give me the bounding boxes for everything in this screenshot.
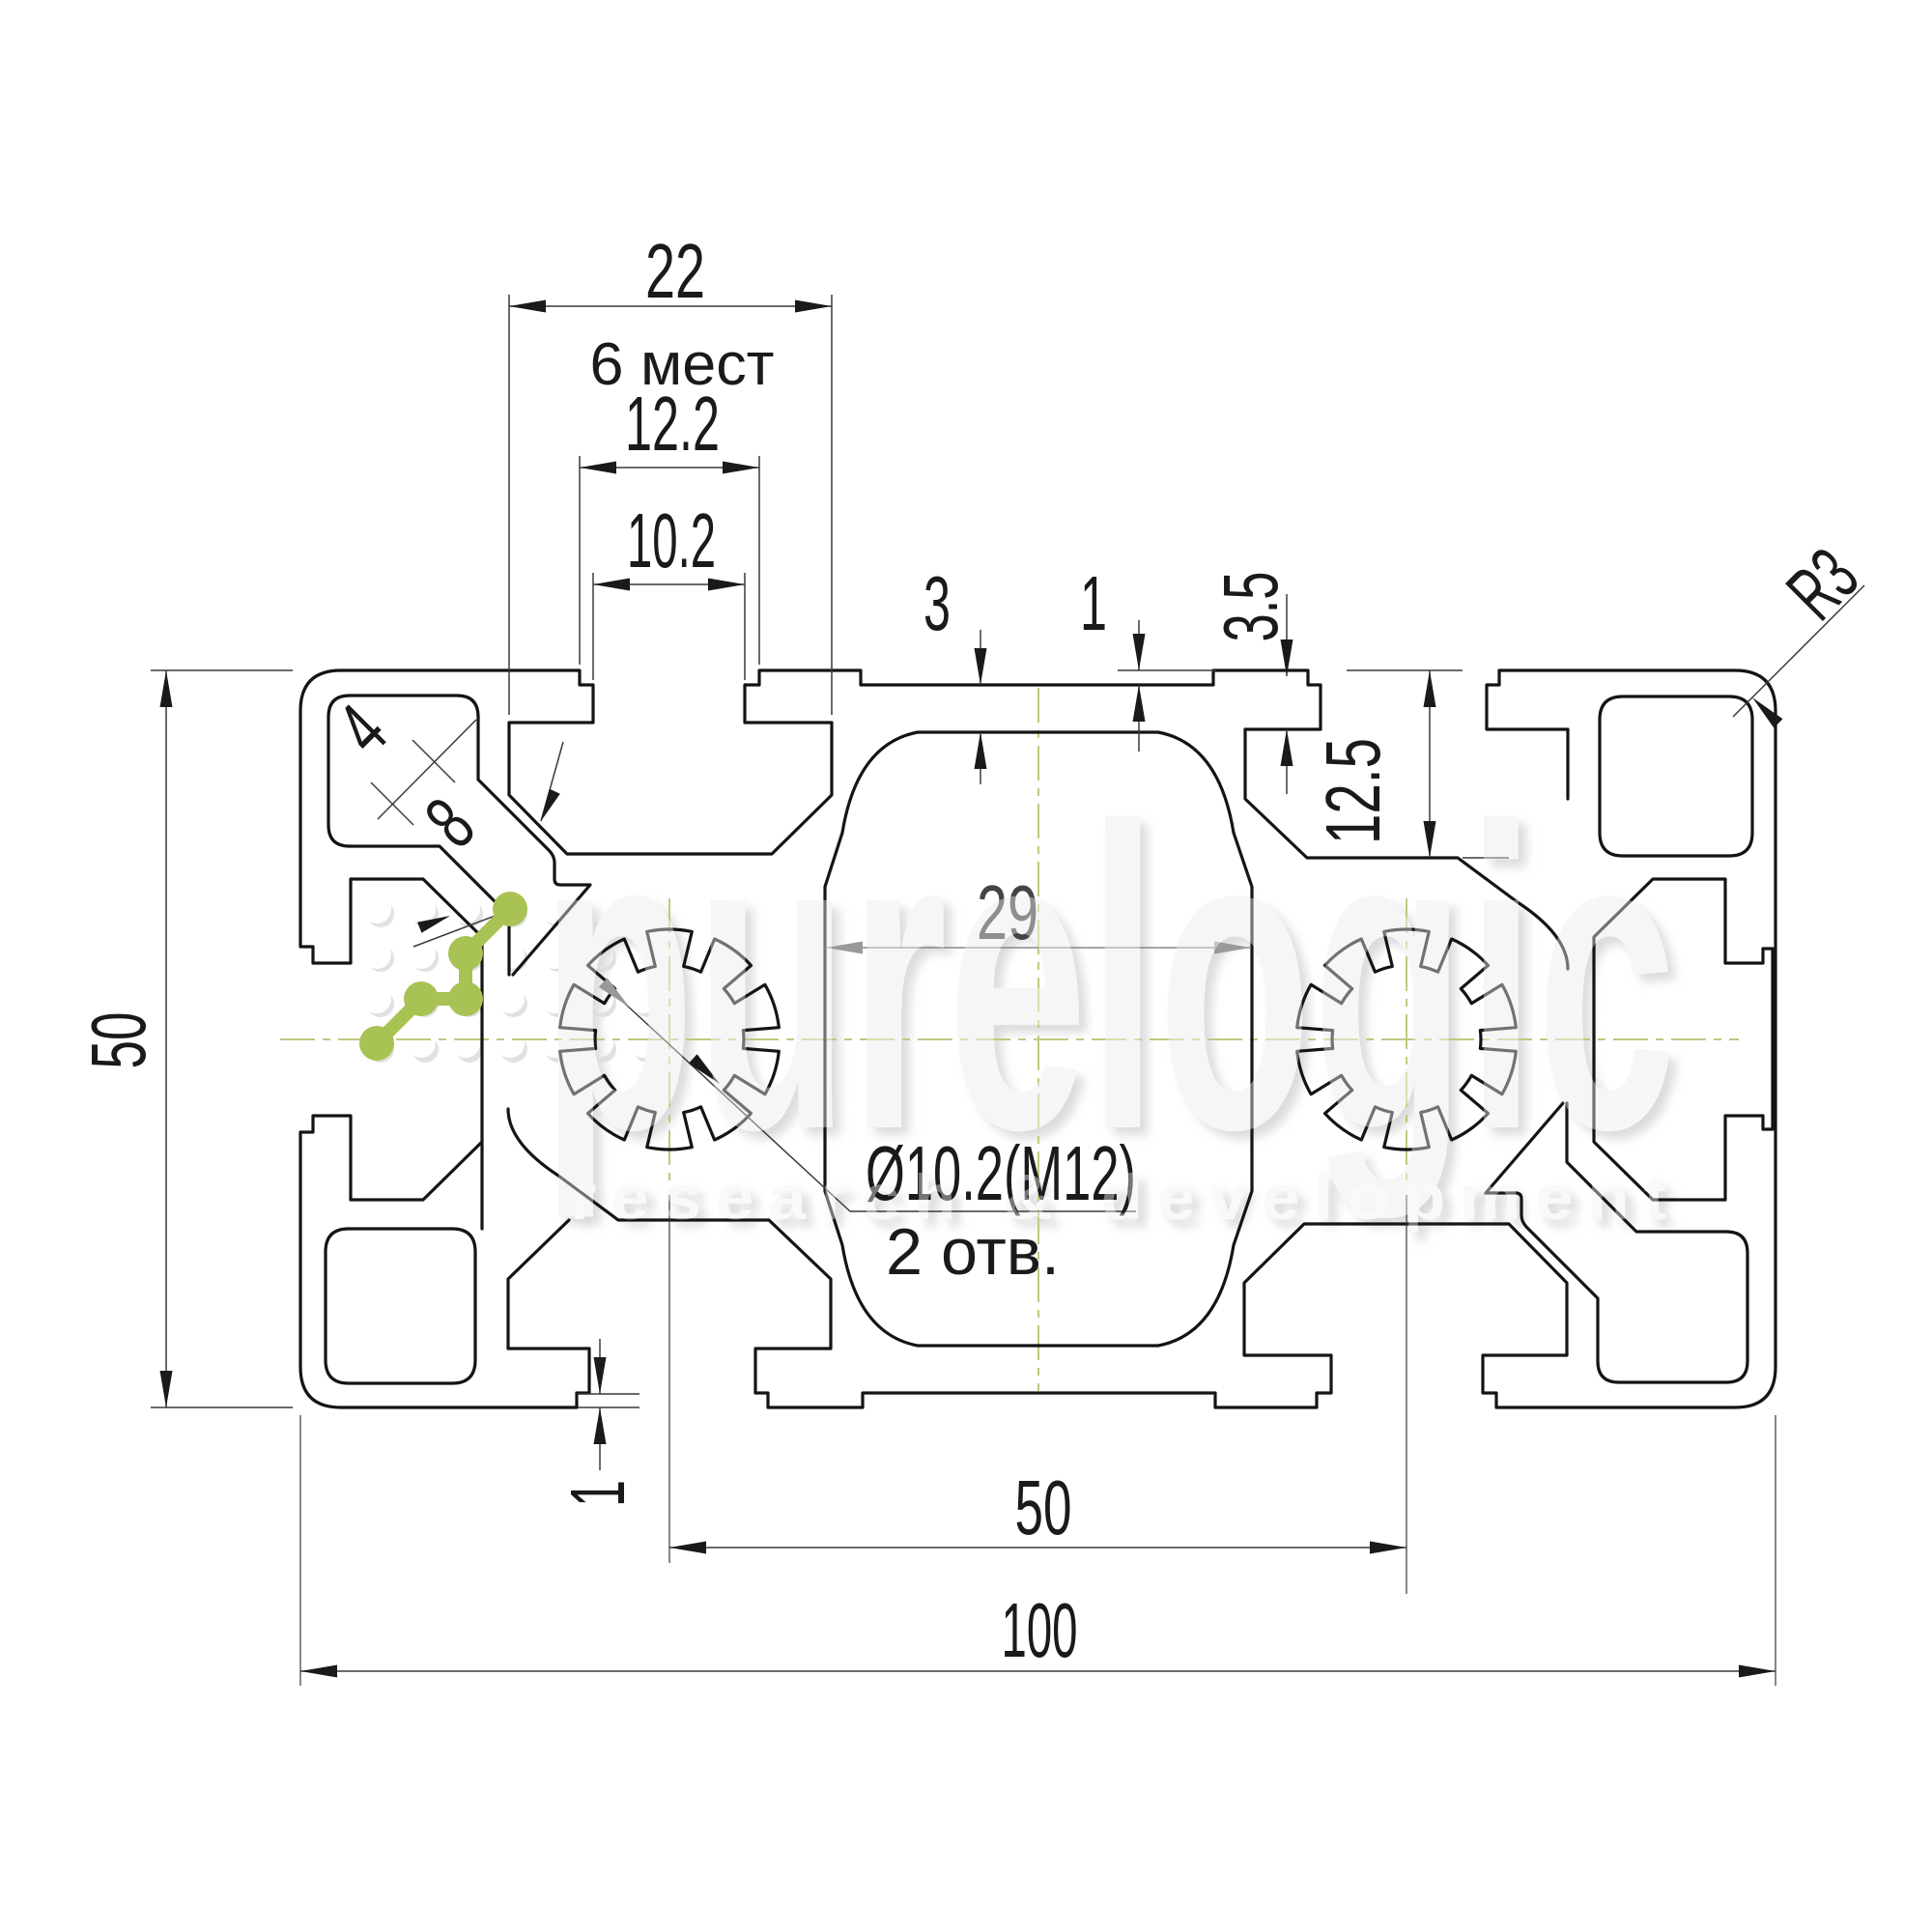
- svg-text:50: 50: [75, 1012, 161, 1069]
- svg-text:100: 100: [1002, 1587, 1078, 1673]
- svg-text:1: 1: [1080, 560, 1107, 646]
- svg-text:10.2: 10.2: [627, 497, 716, 583]
- svg-text:3: 3: [923, 560, 951, 646]
- svg-text:3.5: 3.5: [1207, 572, 1293, 642]
- svg-text:1: 1: [554, 1480, 640, 1507]
- svg-text:research & development: research & development: [570, 1161, 1681, 1233]
- svg-text:12.2: 12.2: [625, 381, 720, 467]
- svg-text:22: 22: [645, 228, 705, 314]
- svg-text:purelogic: purelogic: [541, 740, 1677, 1222]
- svg-text:50: 50: [1015, 1464, 1072, 1550]
